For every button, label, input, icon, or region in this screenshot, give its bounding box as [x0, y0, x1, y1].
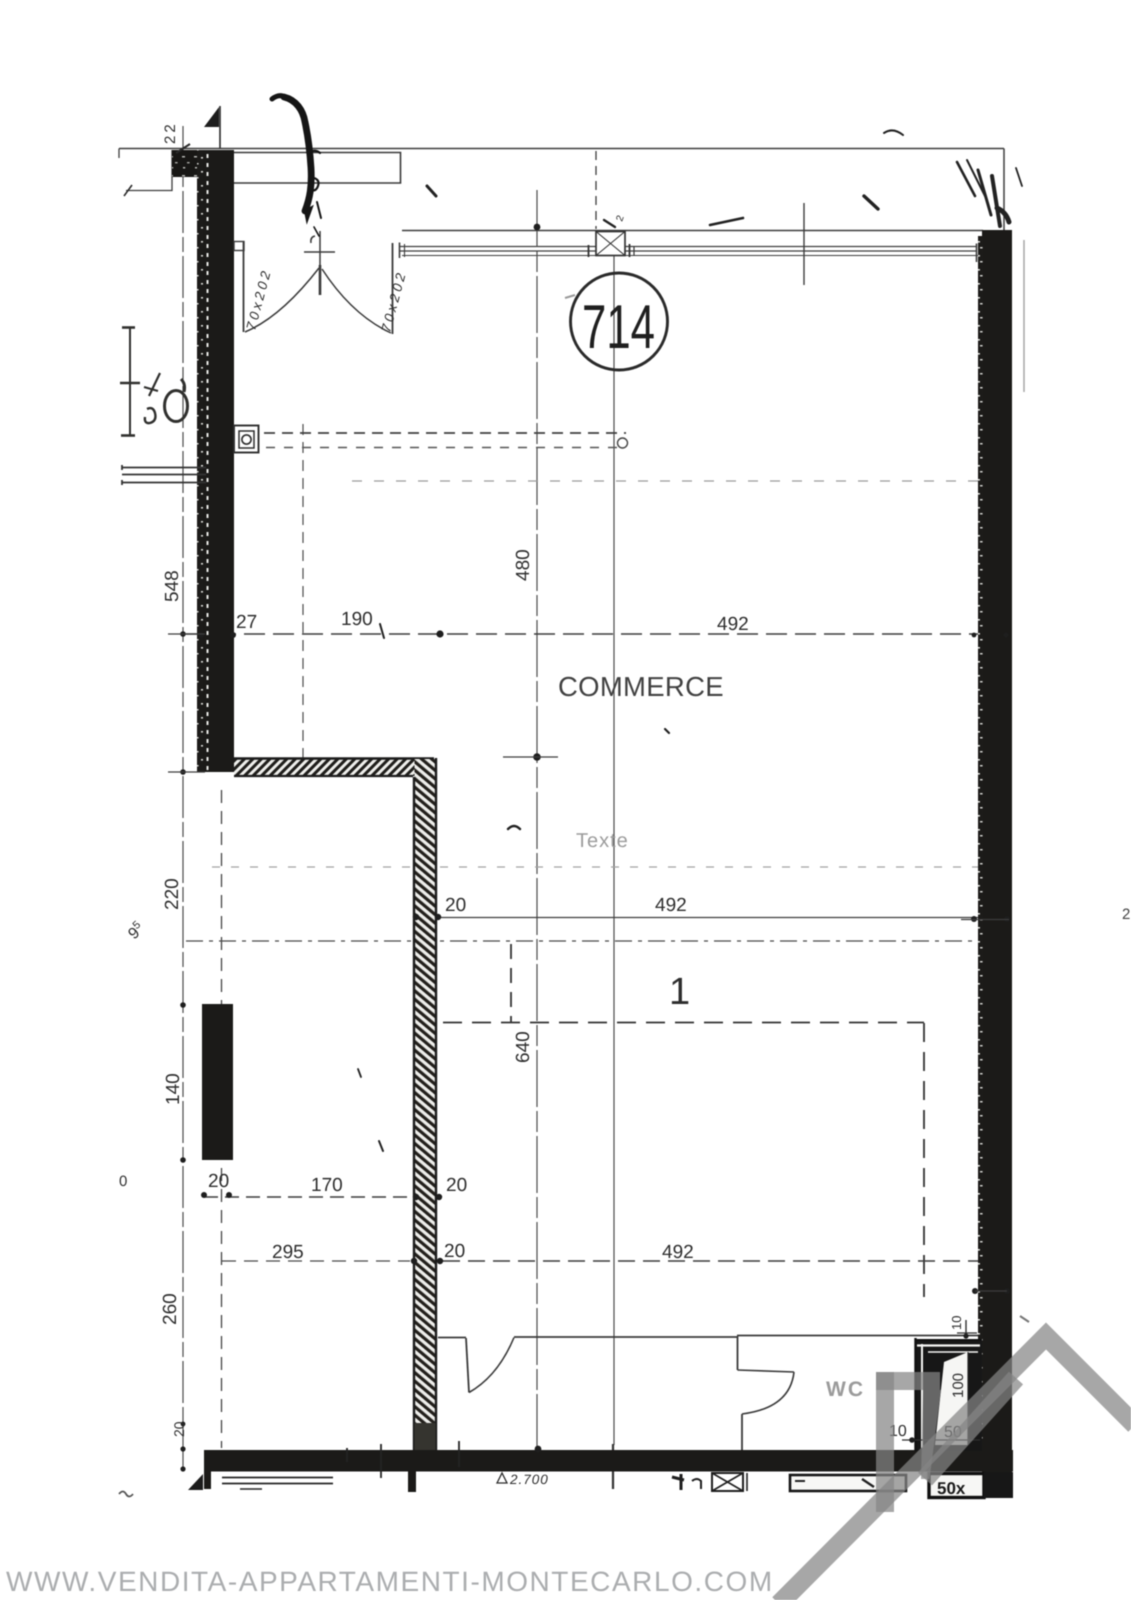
svg-text:20: 20 [445, 895, 466, 916]
svg-text:20: 20 [444, 1241, 465, 1262]
svg-text:220: 220 [162, 878, 183, 910]
svg-text:640: 640 [513, 1031, 534, 1063]
svg-text:480: 480 [513, 549, 534, 581]
svg-text:70x202: 70x202 [243, 267, 274, 332]
svg-text:548: 548 [162, 570, 183, 602]
svg-text:140: 140 [163, 1073, 184, 1105]
svg-text:50x: 50x [937, 1479, 966, 1498]
svg-text:22: 22 [162, 121, 179, 144]
svg-text:295: 295 [272, 1242, 304, 1263]
svg-text:2.700: 2.700 [509, 1472, 549, 1487]
svg-text:714: 714 [582, 293, 655, 362]
svg-text:170: 170 [311, 1175, 343, 1196]
svg-text:1: 1 [669, 971, 690, 1013]
svg-text:27: 27 [236, 612, 257, 633]
svg-text:492: 492 [662, 1242, 694, 1263]
svg-text:260: 260 [160, 1293, 181, 1325]
svg-text:492: 492 [655, 895, 687, 916]
svg-text:2: 2 [614, 214, 626, 223]
svg-text:10: 10 [949, 1316, 964, 1330]
svg-text:70x202: 70x202 [378, 269, 409, 334]
svg-text:WWW.VENDITA-APPARTAMENTI-MONTE: WWW.VENDITA-APPARTAMENTI-MONTECARLO.COM [6, 1566, 774, 1597]
svg-text:95: 95 [124, 919, 148, 943]
svg-text:100: 100 [950, 1373, 967, 1398]
svg-text:20: 20 [208, 1171, 229, 1192]
svg-text:2: 2 [1122, 906, 1130, 923]
svg-text:492: 492 [717, 614, 749, 635]
svg-text:0: 0 [119, 1173, 127, 1190]
svg-text:20: 20 [171, 1421, 187, 1437]
svg-text:190: 190 [341, 609, 373, 630]
svg-text:20: 20 [446, 1175, 467, 1196]
svg-text:WC: WC [826, 1378, 865, 1401]
svg-text:Texte: Texte [576, 830, 629, 852]
svg-text:COMMERCE: COMMERCE [558, 671, 724, 702]
